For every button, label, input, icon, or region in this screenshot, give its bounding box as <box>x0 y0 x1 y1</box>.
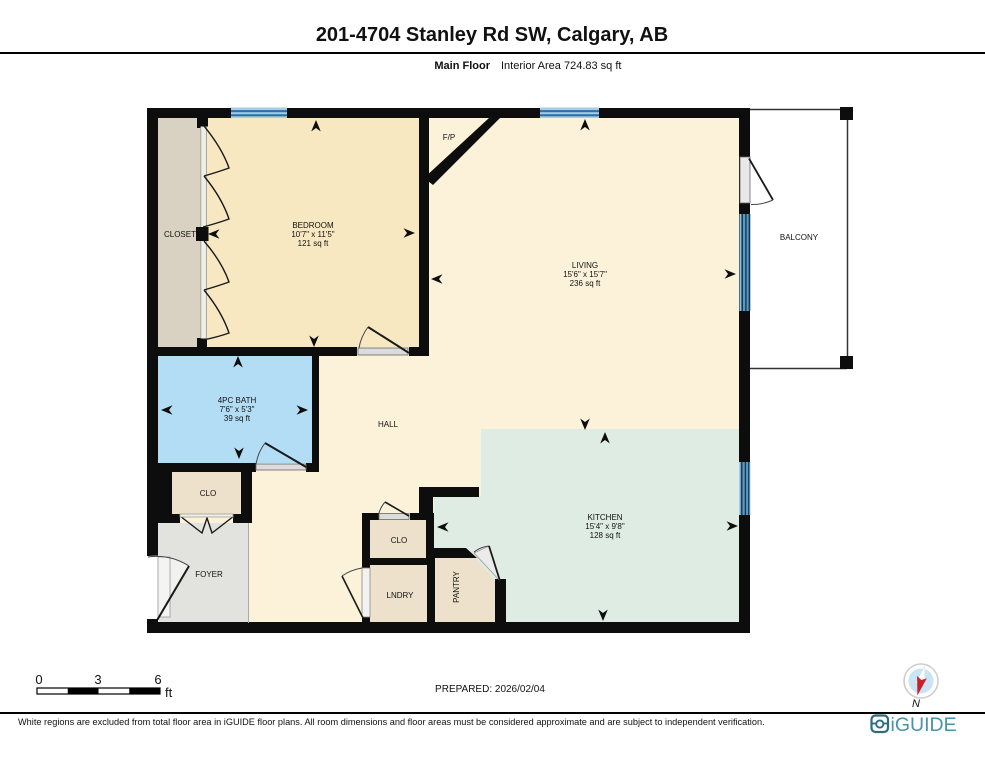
svg-text:LIVING: LIVING <box>572 261 598 270</box>
svg-text:6: 6 <box>154 672 161 687</box>
svg-text:F/P: F/P <box>443 133 455 142</box>
svg-text:White regions are excluded fro: White regions are excluded from total fl… <box>18 717 765 727</box>
svg-text:N: N <box>912 698 920 710</box>
svg-text:CLO: CLO <box>200 489 216 498</box>
svg-text:FOYER: FOYER <box>195 570 223 579</box>
svg-text:ft: ft <box>165 685 173 700</box>
svg-text:201-4704 Stanley Rd SW, Calgar: 201-4704 Stanley Rd SW, Calgary, AB <box>316 24 668 46</box>
svg-text:121 sq ft: 121 sq ft <box>298 239 329 248</box>
svg-text:15'6" x 15'7": 15'6" x 15'7" <box>563 270 607 279</box>
svg-text:0: 0 <box>35 672 42 687</box>
svg-text:PANTRY: PANTRY <box>452 570 461 602</box>
svg-text:PREPARED: 2026/02/04: PREPARED: 2026/02/04 <box>435 684 545 695</box>
svg-text:KITCHEN: KITCHEN <box>587 513 622 522</box>
svg-text:4PC BATH: 4PC BATH <box>218 396 257 405</box>
svg-text:HALL: HALL <box>378 420 399 429</box>
svg-text:128 sq ft: 128 sq ft <box>590 531 621 540</box>
svg-text:CLOSET: CLOSET <box>164 230 196 239</box>
svg-text:236 sq ft: 236 sq ft <box>570 279 601 288</box>
svg-text:39 sq ft: 39 sq ft <box>224 414 251 423</box>
svg-text:3: 3 <box>94 672 101 687</box>
svg-text:10'7" x 11'5": 10'7" x 11'5" <box>291 230 334 239</box>
svg-text:BEDROOM: BEDROOM <box>292 221 334 230</box>
svg-text:15'4" x 9'8": 15'4" x 9'8" <box>585 522 625 531</box>
svg-text:iGUIDE: iGUIDE <box>891 714 957 736</box>
svg-text:BALCONY: BALCONY <box>780 233 819 242</box>
svg-text:LNDRY: LNDRY <box>387 591 415 600</box>
svg-text:7'6" x 5'3": 7'6" x 5'3" <box>220 405 255 414</box>
svg-text:CLO: CLO <box>391 536 407 545</box>
svg-text:Main Floor: Main Floor <box>434 60 490 72</box>
svg-text:Interior Area 724.83 sq ft: Interior Area 724.83 sq ft <box>501 60 621 72</box>
